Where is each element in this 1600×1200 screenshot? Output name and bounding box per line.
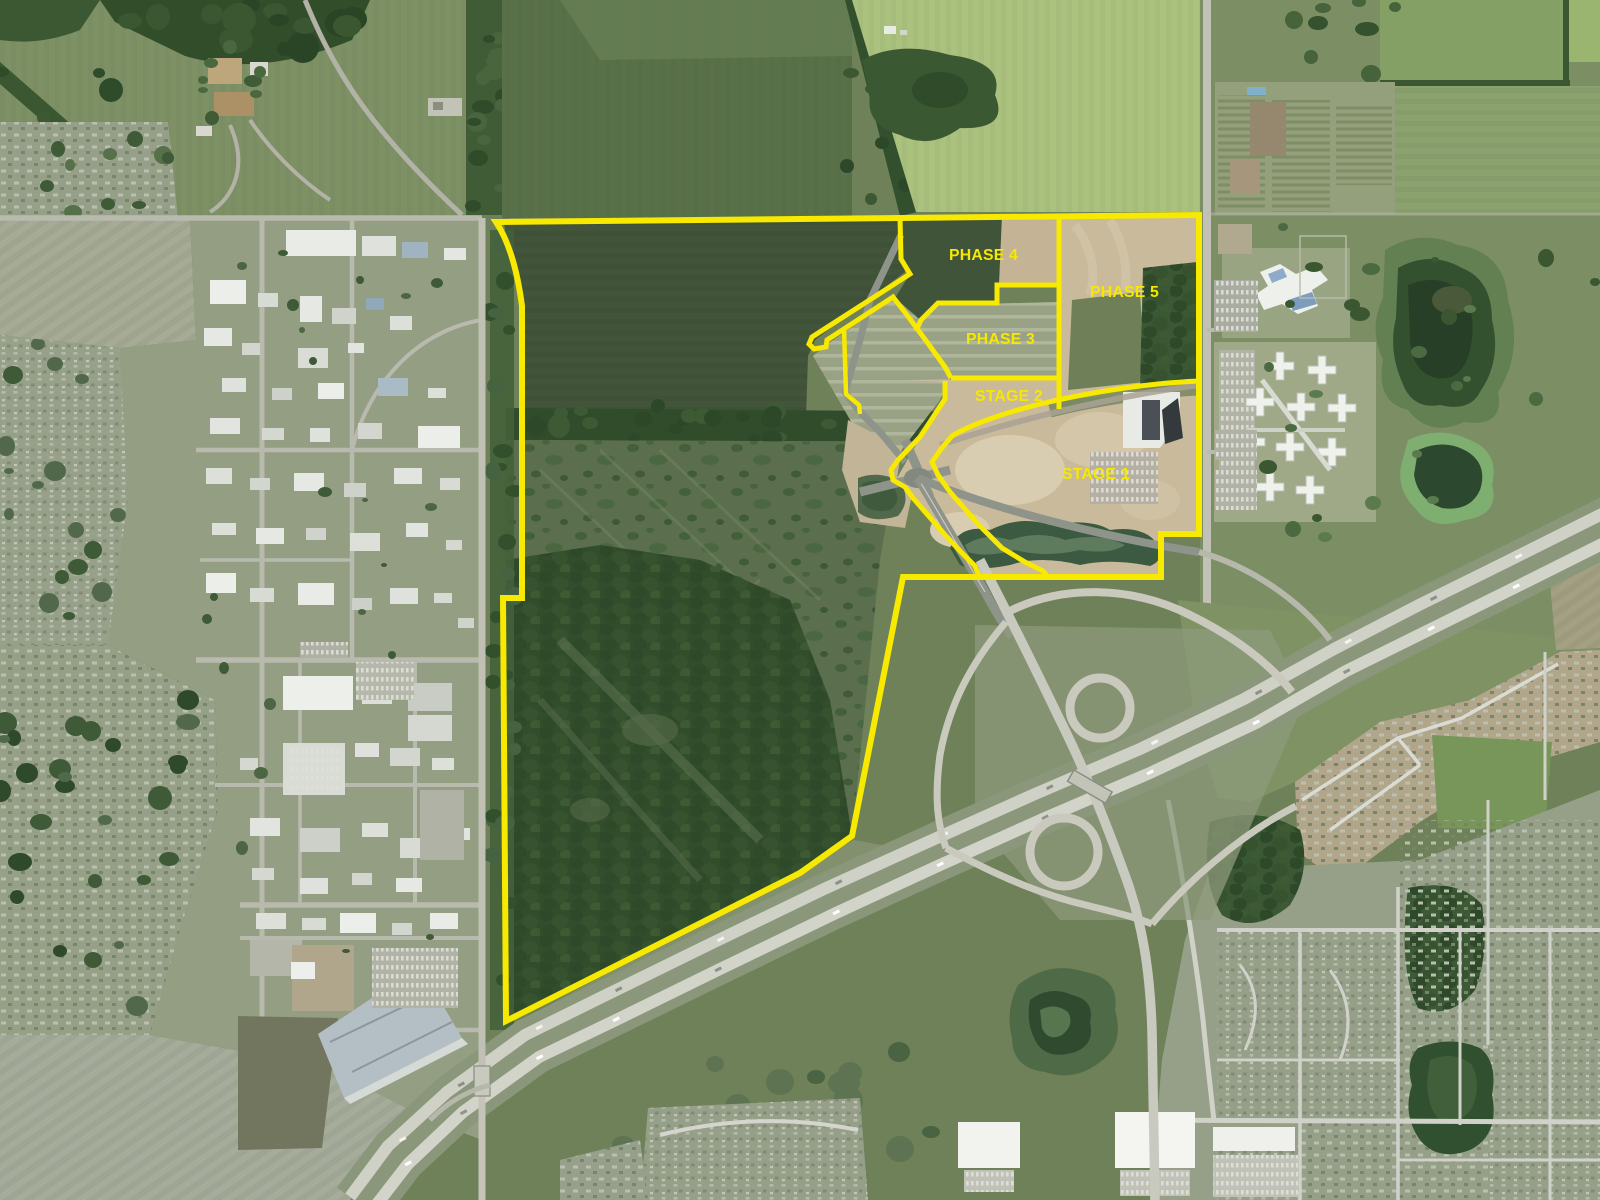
svg-text:PHASE 3: PHASE 3 bbox=[966, 331, 1035, 348]
svg-text:STAGE 2: STAGE 2 bbox=[975, 388, 1043, 405]
svg-text:PHASE 5: PHASE 5 bbox=[1090, 284, 1159, 301]
svg-text:PHASE 4: PHASE 4 bbox=[949, 247, 1018, 264]
svg-text:STAGE 1: STAGE 1 bbox=[1062, 466, 1130, 483]
